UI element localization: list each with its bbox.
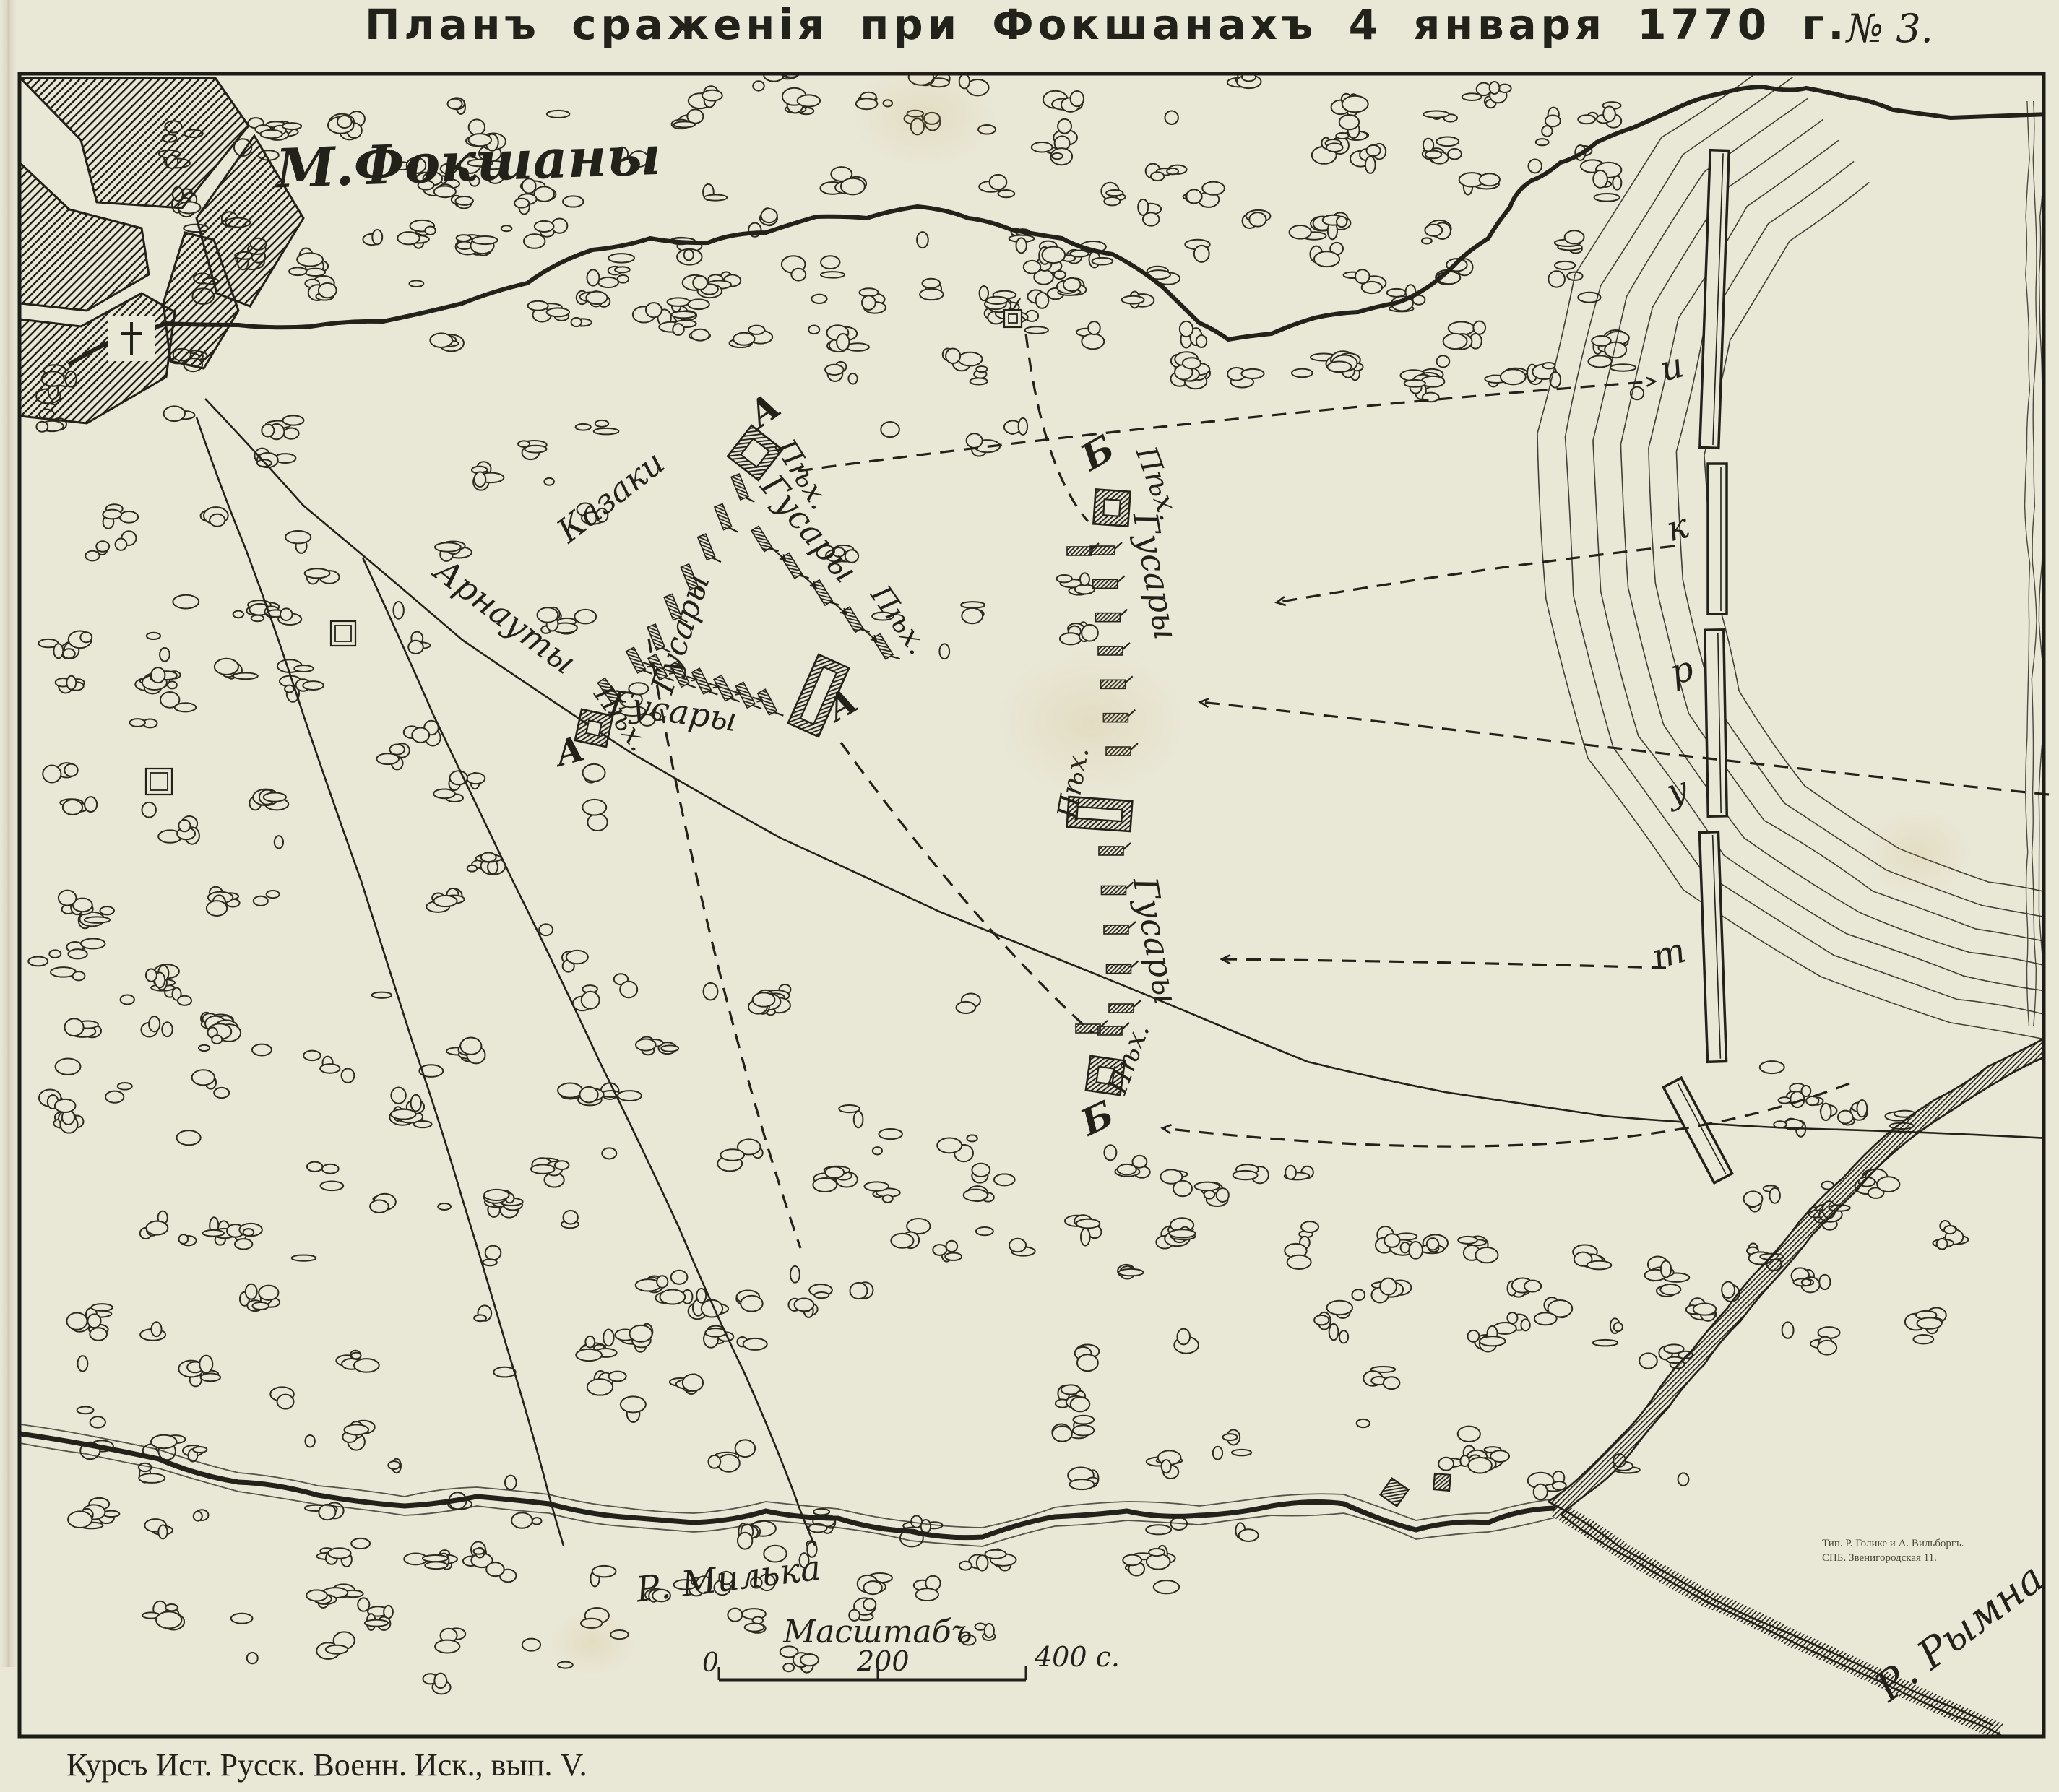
camp-segment xyxy=(1663,1078,1732,1183)
camp-letter-t: т xyxy=(1648,930,1690,978)
battle-map-canvas: КазакиАПѣх.ГусарыГусарыПѣх.АрнаутыАПѣх.Г… xyxy=(0,0,2059,1792)
scale-tick-400: 400 с. xyxy=(1035,1641,1120,1673)
cavalry-b-upper xyxy=(1090,542,1138,756)
scale-tick-0: 0 xyxy=(702,1648,719,1678)
path-to-b-top xyxy=(1026,334,1088,521)
label-b-top: Б xyxy=(1072,427,1121,480)
printer-credit-line1: Тип. Р. Голике и А. Вильборгъ. xyxy=(1822,1537,1964,1551)
sortie-from-t xyxy=(1222,959,1666,968)
rivers xyxy=(20,87,2055,1739)
cavalry-bar xyxy=(1107,961,1139,974)
label-kazaki: Казаки xyxy=(549,443,672,550)
map-sheet: КазакиАПѣх.ГусарыГусарыПѣх.АрнаутыАПѣх.Г… xyxy=(0,0,2059,1792)
cavalry-bar xyxy=(758,688,784,722)
course-caption: Курсъ Ист. Русск. Военн. Иск., вып. V. xyxy=(66,1746,587,1783)
cavalry-bar xyxy=(1095,610,1127,622)
sheet-number: № 3. xyxy=(1847,6,1933,51)
sortie-from-k xyxy=(1277,546,1675,602)
building-2 xyxy=(1433,1473,1451,1491)
camp-letter-r: р xyxy=(1666,649,1698,693)
cavalry-bar xyxy=(842,605,870,639)
cavalry-bar xyxy=(1093,576,1125,588)
outpost-1 xyxy=(331,621,355,646)
building-1 xyxy=(1381,1479,1409,1507)
scale-tick-200: 200 xyxy=(857,1645,910,1677)
camp-segment xyxy=(1700,150,1729,449)
sortie-to-center xyxy=(1201,702,2049,795)
terrain xyxy=(20,56,2056,1739)
scrub-vegetation xyxy=(28,60,1968,1694)
outpost-2 xyxy=(146,769,172,795)
cavalry-bar xyxy=(731,472,754,506)
camp-segment xyxy=(1705,630,1727,816)
cavalry-bar xyxy=(1106,743,1138,756)
camp-letter-i: и xyxy=(1656,345,1688,389)
cavalry-bar xyxy=(1101,676,1133,688)
cavalry-bar xyxy=(751,524,779,558)
label-a-kazaki: А xyxy=(738,384,788,438)
contour-lines xyxy=(1537,56,2056,1040)
label-gusary-b2: Гусары xyxy=(1126,873,1186,1007)
cavalry-bar xyxy=(1099,843,1131,855)
map-labels: КазакиАПѣх.ГусарыГусарыПѣх.АрнаутыАПѣх.Г… xyxy=(426,345,1698,1144)
advance-to-i xyxy=(798,381,1654,471)
cavalry-bar xyxy=(698,532,721,566)
cavalry-bar xyxy=(715,503,738,537)
cavalry-bar xyxy=(1103,710,1135,722)
camp-letter-k: к xyxy=(1662,506,1693,550)
camp-segment xyxy=(1699,832,1726,1062)
printer-credit-line2: СПБ. Звенигородская 11. xyxy=(1822,1551,1964,1566)
square-b-top xyxy=(1093,489,1130,526)
cavalry-bar xyxy=(735,680,761,714)
path-a-to-b xyxy=(841,743,1092,1033)
label-pech-a: Пѣх. xyxy=(863,579,935,661)
cavalry-bar xyxy=(1090,542,1122,555)
label-b-bottom: Б xyxy=(1073,1092,1120,1144)
printer-credit: Тип. Р. Голике и А. Вильборгъ. СПБ. Звен… xyxy=(1822,1537,1964,1565)
sortie-sweep-south xyxy=(1163,1083,1849,1146)
camp-letter-u: у xyxy=(1661,769,1692,813)
cavalry-bar xyxy=(1098,643,1130,655)
cavalry-bar xyxy=(1104,922,1136,934)
map-title: Планъ сраженія при Фокшанахъ 4 января 17… xyxy=(365,0,1848,49)
label-gusary-b1: Гусары xyxy=(1126,508,1186,642)
camp-segment xyxy=(1708,464,1727,614)
cavalry-bar xyxy=(782,551,809,584)
cavalry-bar xyxy=(1109,1000,1141,1013)
